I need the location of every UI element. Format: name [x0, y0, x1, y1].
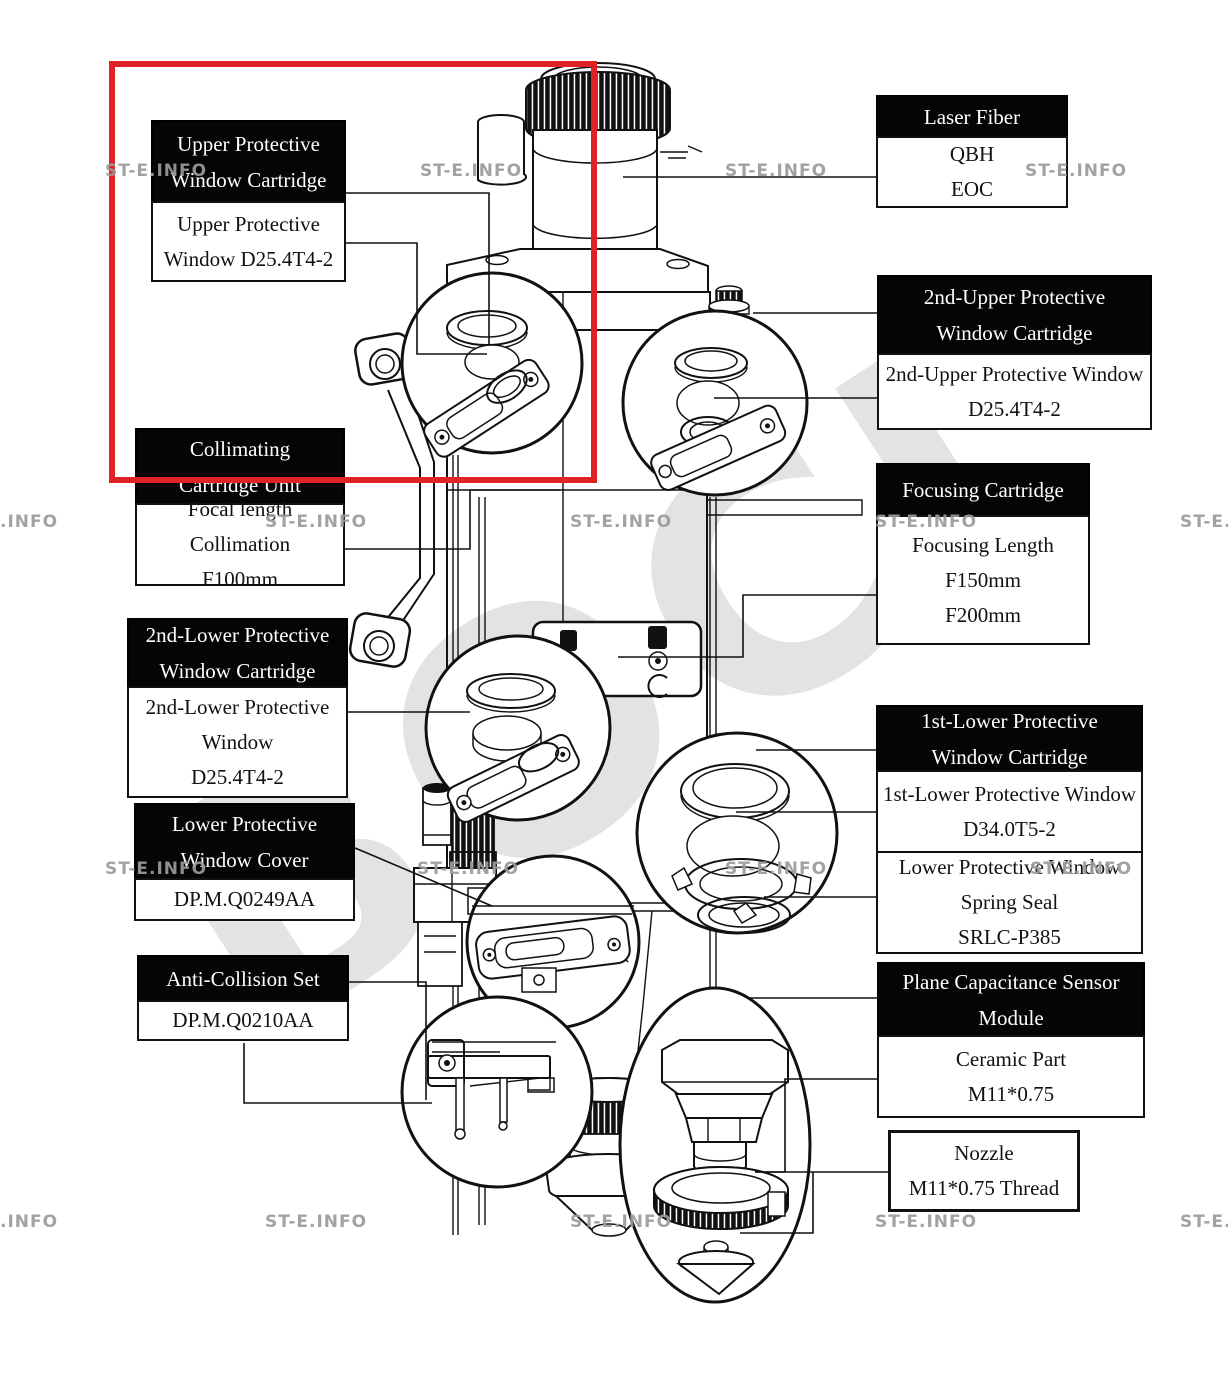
callout-header-line: 2nd-Upper Protective [879, 279, 1150, 315]
watermark-tile: ST-E.INFO [570, 512, 672, 532]
detail-sensor-nozzle [620, 988, 810, 1302]
watermark-tile: ST-E. [1180, 512, 1228, 532]
watermark-tile: .INFO [0, 1212, 58, 1232]
label-tag-icon [648, 626, 667, 649]
callout-body-line: F100mm [137, 562, 343, 597]
callout-body-line: 2nd-Upper Protective Window [879, 357, 1150, 392]
callout-header-line: Module [879, 1000, 1143, 1036]
callout-header-line: Focusing Cartridge [878, 472, 1088, 508]
callout-header-line: 2nd-Lower Protective [129, 617, 346, 653]
callout-1st-lower-protective-window-cartridge: 1st-Lower Protective Window Cartridge 1s… [876, 705, 1143, 954]
detail-1st-lower-protective-window [637, 733, 837, 933]
callout-header-line: Window Cartridge [878, 739, 1141, 775]
detail-2nd-lower-protective-window [426, 636, 610, 825]
watermark-tile: ST-E.INFO [1030, 859, 1132, 879]
callout-body-line: Window [129, 725, 346, 760]
watermark-tile: ST-E.INFO [725, 859, 827, 879]
callout-body-line: M11*0.75 [879, 1077, 1143, 1112]
callout-anti-collision-set: Anti-Collision Set DP.M.Q0210AA [137, 955, 349, 1041]
callout-body-line: D25.4T4-2 [129, 760, 346, 795]
callout-body-line: Ceramic Part [879, 1042, 1143, 1077]
watermark-tile: ST-E.INFO [570, 1212, 672, 1232]
callout-nozzle: Nozzle M11*0.75 Thread [888, 1130, 1080, 1212]
callout-header-line: Anti-Collision Set [139, 961, 347, 997]
watermark-tile: ST-E.INFO [265, 512, 367, 532]
callout-header-line: Lower Protective [136, 806, 353, 842]
watermark-tile: .INFO [0, 512, 58, 532]
callout-header-line: 1st-Lower Protective [878, 703, 1141, 739]
watermark-tile: ST-E. [1180, 1212, 1228, 1232]
watermark-tile: ST-E.INFO [1025, 161, 1127, 181]
detail-2nd-upper-protective-window [623, 311, 807, 495]
watermark-tile: ST-E.INFO [875, 1212, 977, 1232]
callout-body-line: Spring Seal [878, 885, 1141, 920]
callout-focusing-cartridge: Focusing Cartridge Focusing Length F150m… [876, 463, 1090, 645]
callout-header-line: Laser Fiber [878, 99, 1066, 135]
callout-2nd-upper-protective-window-cartridge: 2nd-Upper Protective Window Cartridge 2n… [877, 275, 1152, 430]
callout-body-line: F200mm [878, 598, 1088, 633]
watermark-tile: ST-E.INFO [725, 161, 827, 181]
callout-body-line: Focusing Length [878, 528, 1088, 563]
watermark-tile: ST-E.INFO [420, 161, 522, 181]
callout-2nd-lower-protective-window-cartridge: 2nd-Lower Protective Window Cartridge 2n… [127, 618, 348, 798]
watermark-tile: ST-E.INFO [105, 859, 207, 879]
parts-diagram-page: BOCI [0, 0, 1228, 1396]
callout-header-line: Window Cartridge [129, 653, 346, 689]
callout-body-line: DP.M.Q0210AA [139, 1003, 347, 1038]
callout-plane-capacitance-sensor-module: Plane Capacitance Sensor Module Ceramic … [877, 962, 1145, 1118]
protective-window-lens [677, 381, 739, 425]
callout-body-line: D34.0T5-2 [878, 812, 1141, 847]
callout-body-line: D25.4T4-2 [879, 392, 1150, 427]
detail-anti-collision [402, 997, 592, 1187]
callout-laser-fiber: Laser Fiber QBH EOC [876, 95, 1068, 208]
watermark-tile: ST-E.INFO [265, 1212, 367, 1232]
callout-header-line: Plane Capacitance Sensor [879, 964, 1143, 1000]
callout-body-line: SRLC-P385 [878, 920, 1141, 955]
callout-body-line: DP.M.Q0249AA [136, 882, 353, 917]
watermark-tile: ST-E.INFO [105, 161, 207, 181]
callout-body-line: 1st-Lower Protective Window [878, 777, 1141, 812]
red-highlight-rectangle [109, 61, 597, 483]
callout-body-line: 2nd-Lower Protective [129, 690, 346, 725]
callout-body-line: Nozzle [891, 1136, 1077, 1171]
callout-body-line: F150mm [878, 563, 1088, 598]
protective-window-lens [473, 716, 541, 750]
callout-body-line: M11*0.75 Thread [891, 1171, 1077, 1206]
watermark-tile: ST-E.INFO [875, 512, 977, 532]
callout-header-line: Window Cartridge [879, 315, 1150, 351]
watermark-tile: ST-E.INFO [417, 859, 519, 879]
